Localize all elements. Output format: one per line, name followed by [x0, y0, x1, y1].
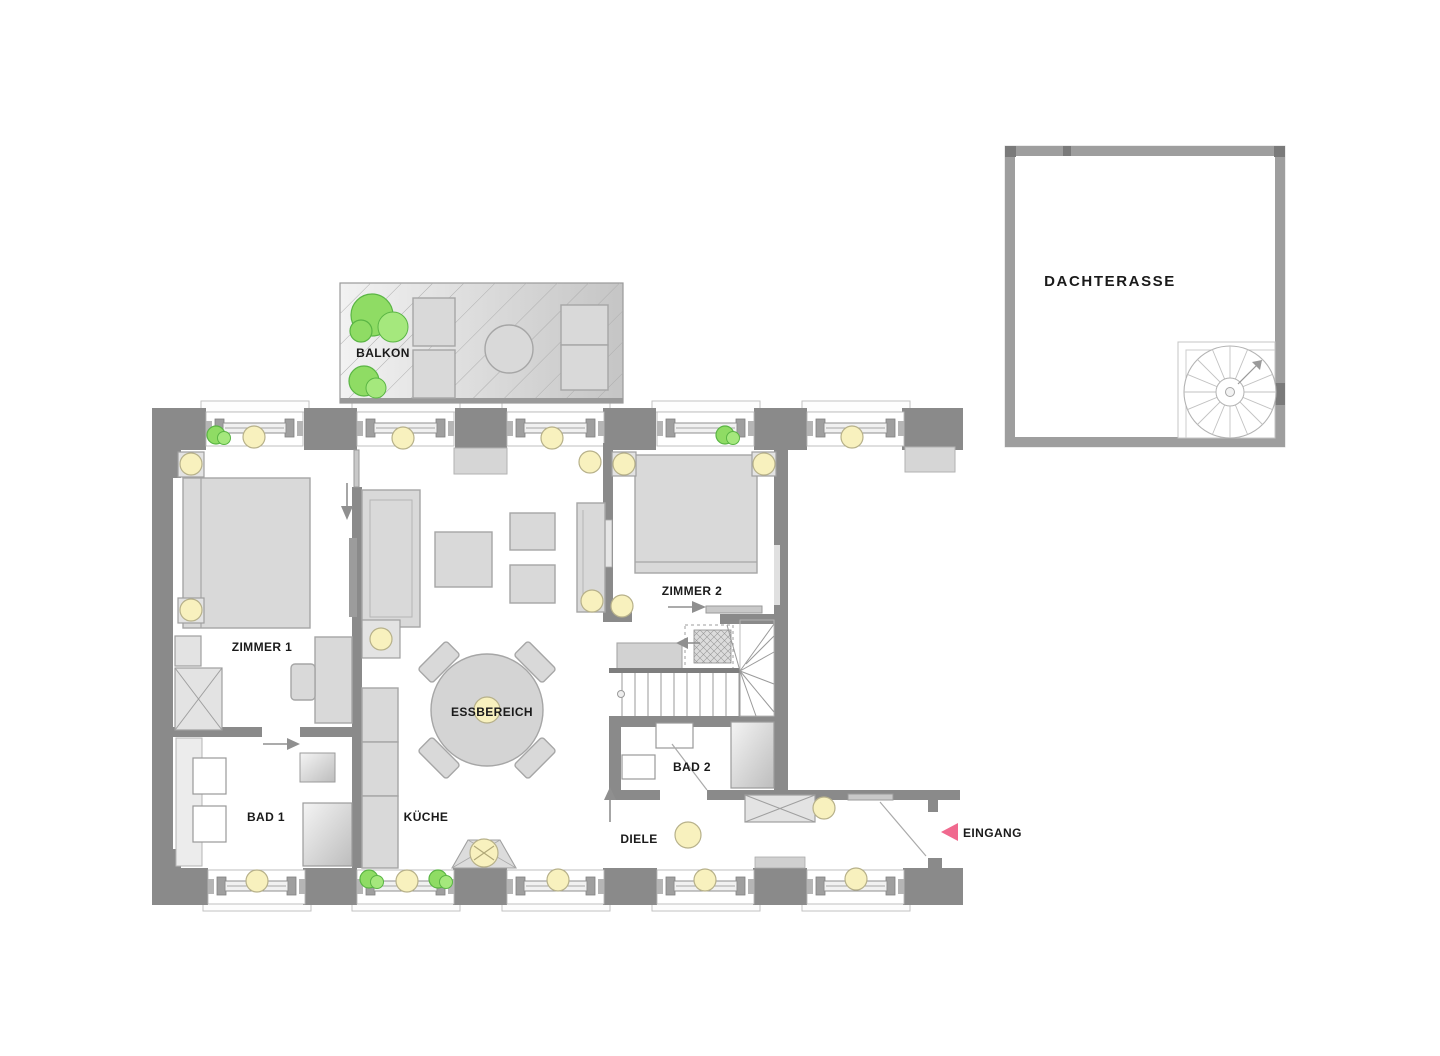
- stair-edge: [609, 668, 740, 673]
- staircase: [609, 620, 774, 716]
- zimmer1: ZIMMER 1: [175, 452, 353, 730]
- lamp-icon: [396, 870, 418, 892]
- wall-pillar: [754, 408, 807, 450]
- lamp-icon: [246, 870, 268, 892]
- wall-corner: [1005, 146, 1016, 157]
- vanity-counter: [176, 738, 202, 866]
- wall-pillar: [903, 868, 963, 905]
- terrace-wall: [1005, 146, 1285, 156]
- balcony-lounger: [561, 345, 608, 390]
- door-leaf: [354, 450, 359, 487]
- desk-chair: [291, 664, 315, 700]
- tv: [349, 538, 357, 617]
- balcony: BALKON: [340, 283, 623, 403]
- sill: [652, 401, 760, 412]
- wall-zimmer2-bottom: [720, 614, 775, 624]
- balcony-table: [485, 325, 533, 373]
- stair-treads: [622, 673, 739, 716]
- wall-pillar: [152, 868, 208, 905]
- bad2: BAD 2: [622, 722, 774, 790]
- wall-niche: [774, 545, 780, 605]
- room-label-bad1: BAD 1: [247, 810, 285, 824]
- room-label-dachterasse: DACHTERASSE: [1044, 273, 1176, 290]
- bed: [635, 455, 757, 573]
- shower: [303, 803, 352, 866]
- sink: [193, 758, 226, 794]
- wall-pillar: [303, 868, 357, 905]
- lamp-icon: [753, 453, 775, 475]
- room-label-zimmer2: ZIMMER 2: [662, 584, 723, 598]
- wall-bad1: [300, 727, 355, 737]
- lamp-icon: [841, 426, 863, 448]
- pouf: [510, 565, 555, 603]
- dresser: [175, 636, 201, 666]
- wall-corner: [1274, 146, 1285, 157]
- room-label-kueche: KÜCHE: [404, 809, 449, 824]
- lamp-icon: [579, 451, 601, 473]
- entrance-label: EINGANG: [963, 826, 1022, 840]
- room-label-bad2: BAD 2: [673, 760, 711, 774]
- wall-pillar: [152, 408, 206, 450]
- entrance-arrow-icon: [941, 823, 958, 841]
- room-label-diele: DIELE: [620, 832, 657, 846]
- sink: [656, 723, 693, 748]
- sill: [201, 401, 309, 412]
- kitchen-unit: [362, 688, 398, 742]
- lamp-icon: [813, 797, 835, 819]
- bad1: BAD 1: [176, 738, 352, 866]
- window: [657, 412, 754, 446]
- toilet: [300, 753, 335, 782]
- balcony-chair: [413, 350, 455, 398]
- wall-pillar: [603, 868, 657, 905]
- sill: [802, 401, 910, 412]
- stove: [452, 839, 516, 868]
- sofa: [362, 490, 420, 627]
- wall-bad2-left: [609, 716, 621, 800]
- wall-notch: [928, 858, 942, 868]
- wardrobe: [175, 668, 222, 730]
- balcony-lounger: [561, 305, 608, 345]
- balcony-edge: [340, 398, 623, 403]
- room-label-zimmer1: ZIMMER 1: [232, 640, 293, 654]
- lamp-icon: [613, 453, 635, 475]
- shower: [731, 722, 774, 788]
- wall-pillar: [304, 408, 357, 450]
- radiator: [454, 448, 507, 474]
- room-label-balkon: BALKON: [356, 346, 410, 360]
- lamp-icon: [547, 869, 569, 891]
- wall-pillar: [455, 408, 507, 450]
- kitchen-unit: [362, 742, 398, 796]
- lamp-icon: [611, 595, 633, 617]
- sink: [622, 755, 655, 779]
- lamp-icon: [694, 869, 716, 891]
- lamp-icon: [541, 427, 563, 449]
- wall-pillar: [902, 408, 963, 450]
- coffee-table: [435, 532, 492, 587]
- stair-landing: [617, 643, 682, 670]
- wall-left: [152, 450, 173, 868]
- lamp-icon: [180, 453, 202, 475]
- stair-newel: [618, 691, 625, 698]
- lamp-icon: [370, 628, 392, 650]
- wall-joint: [1063, 146, 1071, 156]
- zimmer2: ZIMMER 2: [612, 452, 776, 613]
- lamp-icon: [243, 426, 265, 448]
- lamp-icon: [845, 868, 867, 890]
- spiral-staircase: [1178, 342, 1276, 438]
- lamp-icon: [581, 590, 603, 612]
- stair-hatch: [694, 630, 731, 663]
- floor-plan: BALKON: [0, 0, 1440, 1056]
- pouf: [510, 513, 555, 550]
- terrace-wall: [1005, 146, 1015, 447]
- lamp-icon: [675, 822, 701, 848]
- bench: [755, 857, 805, 868]
- lamp-icon: [392, 427, 414, 449]
- entrance-door-leaf: [848, 794, 893, 800]
- balcony-chair: [413, 298, 455, 346]
- wardrobe: [745, 795, 815, 822]
- radiator: [905, 447, 955, 472]
- door-arrow: [341, 506, 353, 520]
- kitchen-unit: [362, 796, 398, 868]
- door-arrow: [287, 738, 300, 750]
- door-leaf: [706, 606, 762, 613]
- entrance-door-swing: [880, 802, 926, 856]
- wall-notch: [928, 800, 938, 812]
- room-label-essbereich: ESSBEREICH: [451, 705, 533, 719]
- roof-terrace: DACHTERASSE: [1005, 146, 1285, 447]
- wall-pillar: [753, 868, 807, 905]
- lamp-icon: [180, 599, 202, 621]
- sink: [193, 806, 226, 842]
- wall-diele: [609, 790, 660, 800]
- door-arrow: [692, 601, 706, 613]
- desk: [315, 637, 352, 723]
- wall-pillar: [453, 868, 507, 905]
- wall-zimmer2-right: [774, 447, 788, 790]
